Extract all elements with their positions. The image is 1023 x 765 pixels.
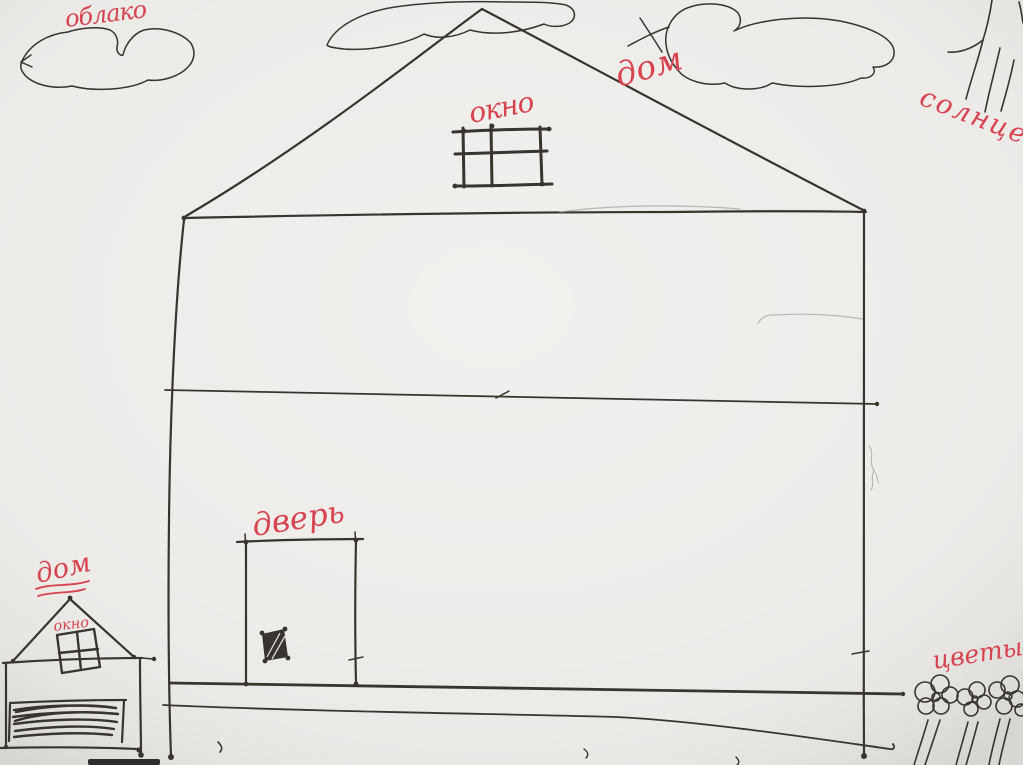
pen-dot	[4, 745, 8, 749]
pen-dot	[547, 127, 552, 132]
attic-window-vertical-bar	[491, 125, 492, 186]
pen-dot	[136, 747, 141, 752]
door-knob	[262, 629, 288, 661]
pen-dot	[453, 184, 458, 189]
scanned-drawing: облако дом окно солнце дверь дом окно цв…	[0, 0, 1023, 765]
pen-dot	[11, 659, 15, 663]
attic-window-left	[463, 128, 464, 187]
pen-dot	[260, 631, 265, 636]
pen-dot	[861, 753, 867, 759]
pen-dot	[354, 682, 359, 687]
pen-dot	[244, 682, 249, 687]
pen-dot	[540, 182, 545, 187]
pen-dot	[152, 657, 156, 661]
attic-window-right	[540, 127, 542, 184]
pen-dot	[862, 209, 867, 214]
pen-dot	[244, 540, 249, 545]
pen-dot	[182, 216, 187, 221]
pen-dot	[138, 752, 144, 758]
pen-dot	[283, 627, 288, 632]
pen-dot	[132, 655, 136, 659]
small-house-inner-left	[9, 704, 10, 741]
pen-dot	[462, 129, 467, 134]
small-house-right-wall	[140, 660, 141, 754]
pen-dot	[901, 692, 905, 696]
scan-edge-streak	[88, 759, 160, 765]
scanned-page: облако дом окно солнце дверь дом окно цв…	[0, 0, 1023, 765]
pen-dot	[354, 538, 359, 543]
pen-dot	[286, 656, 291, 661]
door-right-line	[355, 541, 356, 684]
pen-dot	[263, 659, 268, 664]
pen-dot	[875, 402, 879, 406]
pen-dot	[168, 754, 174, 760]
small-house-top-ext	[142, 658, 153, 659]
pen-dot	[68, 596, 73, 601]
